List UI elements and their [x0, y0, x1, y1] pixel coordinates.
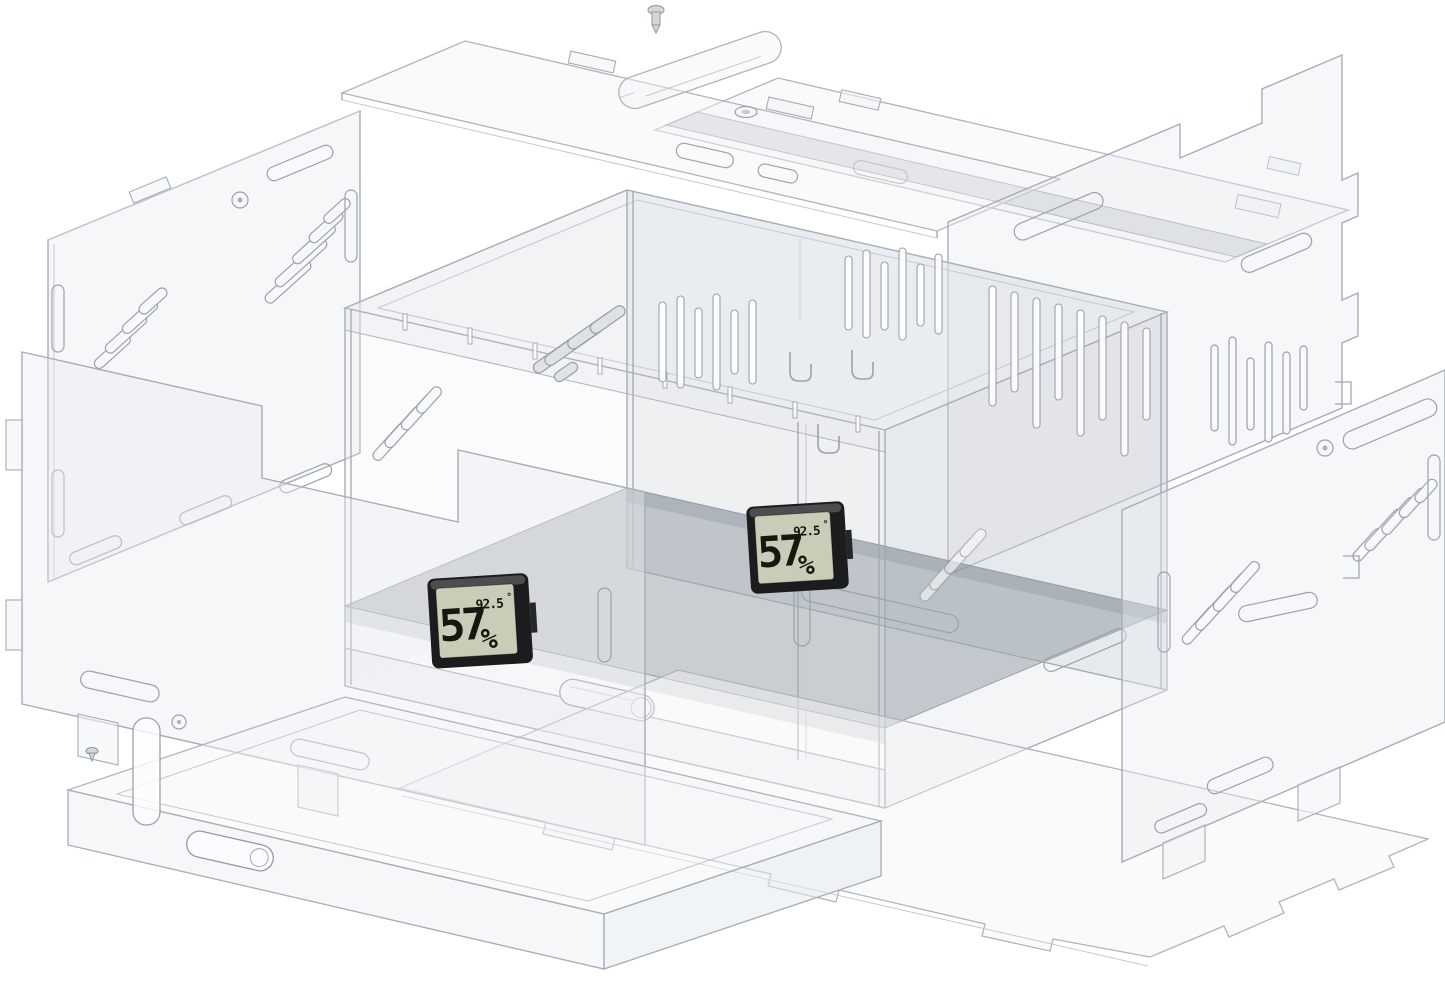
temperature-unit: ° — [823, 519, 830, 530]
door-latch-pin — [133, 718, 160, 825]
hygrometer-front: 57 92.5 ° % — [427, 572, 539, 668]
hygrometer-back: 57 92.5 ° % — [746, 501, 855, 594]
temperature-value: 92.5 — [475, 596, 503, 613]
panel-tab — [6, 600, 22, 650]
exploded-terrarium-illustration: 57 92.5 ° % 57 92.5 ° % — [0, 0, 1445, 997]
product-exploded-view: 57 92.5 ° % 57 92.5 ° % — [0, 0, 1445, 997]
lid-screw — [648, 6, 664, 34]
humidity-unit: % — [480, 622, 499, 656]
humidity-unit: % — [797, 550, 816, 582]
temperature-unit: ° — [506, 592, 513, 603]
panel-tab — [6, 420, 22, 470]
temperature-value: 92.5 — [793, 523, 821, 540]
panel-foot — [78, 714, 118, 765]
